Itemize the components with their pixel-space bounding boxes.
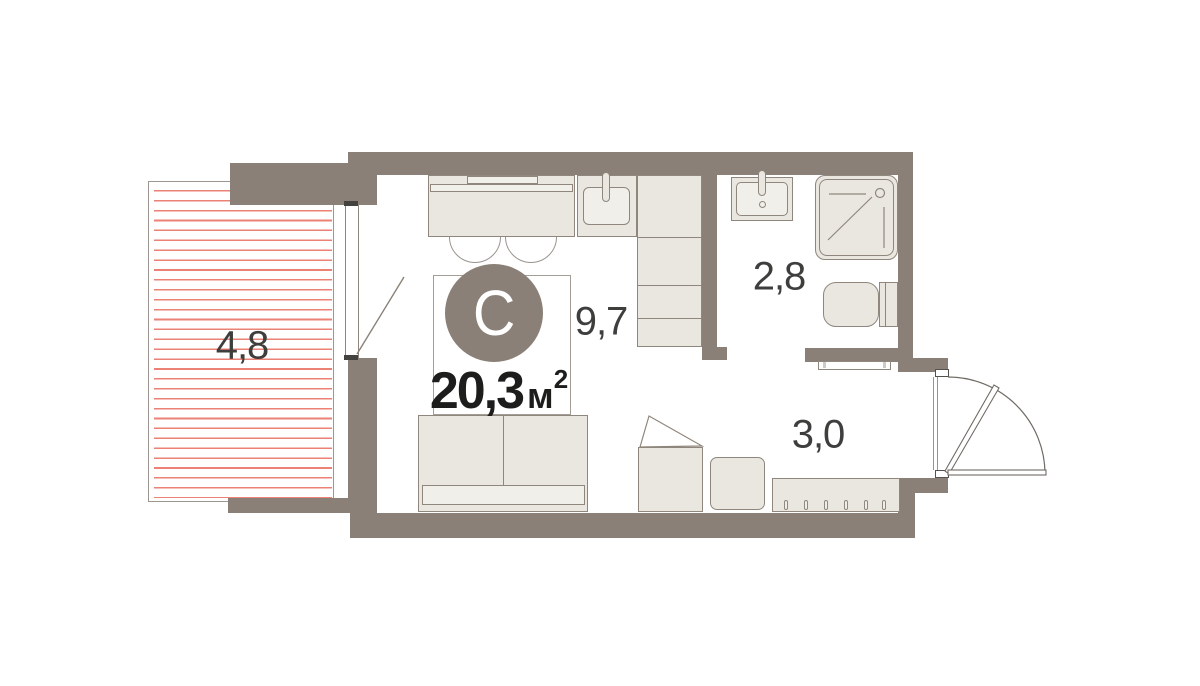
hall-cabinet-open-door bbox=[640, 416, 702, 447]
total-area-superscript: 2 bbox=[554, 364, 568, 394]
total-area-label: 20,3м2 bbox=[430, 361, 568, 421]
unit-type-letter: С bbox=[473, 281, 516, 345]
unit-type-badge: С bbox=[445, 264, 543, 362]
shower-drain-icon bbox=[876, 189, 885, 198]
living-area-label: 9,7 bbox=[575, 300, 628, 345]
total-area-unit: м bbox=[527, 375, 554, 416]
total-area-value: 20,3 bbox=[430, 362, 523, 420]
shower-diagonal-line bbox=[828, 197, 872, 240]
entrance-door-open-leaf bbox=[948, 470, 1046, 475]
hallway-area-label: 3,0 bbox=[792, 413, 845, 458]
bathroom-area-label: 2,8 bbox=[753, 255, 806, 300]
entrance-door-leaf bbox=[945, 385, 999, 474]
floor-plan: 4,8 bbox=[0, 0, 1200, 686]
balcony-door-swing-line bbox=[357, 277, 404, 354]
